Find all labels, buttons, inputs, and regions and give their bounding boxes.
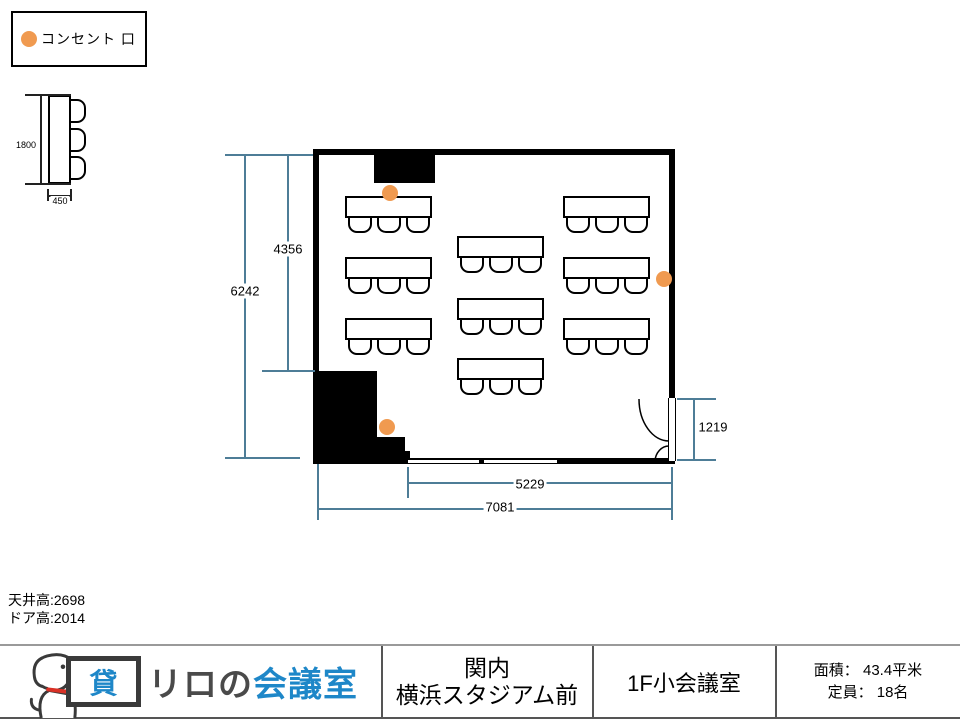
chair bbox=[460, 318, 484, 335]
table bbox=[345, 318, 432, 340]
door-height-note: ドア高:2014 bbox=[8, 609, 85, 627]
chair bbox=[595, 216, 619, 233]
table-with-chairs bbox=[457, 298, 544, 338]
chair bbox=[566, 216, 590, 233]
chair bbox=[624, 277, 648, 294]
chair bbox=[624, 338, 648, 355]
chair-row bbox=[563, 338, 650, 355]
chair bbox=[406, 216, 430, 233]
footer-stats: 面積： 43.4平米 定員： 18名 bbox=[776, 646, 960, 717]
chair-row bbox=[345, 216, 432, 233]
location-line2: 横浜スタジアム前 bbox=[396, 682, 578, 709]
dimension-tick bbox=[25, 94, 71, 96]
dimension-tick bbox=[225, 154, 313, 156]
chair bbox=[377, 216, 401, 233]
height-notes: 天井高:2698 ドア高:2014 bbox=[8, 591, 85, 627]
table bbox=[563, 318, 650, 340]
legend-label: コンセント 口 bbox=[41, 29, 136, 49]
dimension-tick bbox=[25, 183, 71, 185]
chair bbox=[518, 378, 542, 395]
area-row: 面積： 43.4平米 bbox=[814, 660, 922, 682]
door-opening bbox=[668, 398, 676, 461]
dimension-line bbox=[287, 154, 289, 371]
dimension-tick bbox=[677, 398, 716, 400]
footer-location: 関内 横浜スタジアム前 bbox=[382, 646, 592, 717]
brand-logo: リロの会議室 bbox=[148, 646, 358, 717]
table bbox=[563, 196, 650, 218]
chair bbox=[595, 338, 619, 355]
dimension-tick bbox=[671, 467, 673, 520]
table bbox=[563, 257, 650, 279]
table-with-chairs bbox=[345, 196, 432, 236]
chair bbox=[348, 216, 372, 233]
capacity-label: 定員： bbox=[828, 684, 873, 701]
footer-room-name: 1F小会議室 bbox=[593, 646, 775, 717]
dimension-tick bbox=[317, 464, 319, 520]
pillar-top bbox=[374, 151, 435, 183]
ceiling-height-note: 天井高:2698 bbox=[8, 591, 85, 609]
chair-row bbox=[457, 318, 544, 335]
chair-row bbox=[563, 216, 650, 233]
pillar-bottom-left bbox=[315, 371, 377, 462]
chair-row bbox=[345, 277, 432, 294]
brand-text-gray: リロの bbox=[148, 657, 253, 706]
table-with-chairs bbox=[563, 318, 650, 358]
chair bbox=[518, 256, 542, 273]
area-value: 43.4平米 bbox=[863, 662, 922, 679]
dimension-tick bbox=[70, 189, 72, 201]
table bbox=[457, 236, 544, 258]
chair bbox=[460, 256, 484, 273]
chair bbox=[377, 277, 401, 294]
mini-chair bbox=[69, 128, 86, 152]
chair bbox=[566, 277, 590, 294]
room-name-text: 1F小会議室 bbox=[627, 666, 741, 698]
table-with-chairs bbox=[563, 196, 650, 236]
dim-inner-width: 5229 bbox=[514, 477, 547, 492]
area-label: 面積： bbox=[814, 662, 859, 679]
outlet-dot-icon bbox=[382, 185, 398, 201]
chair bbox=[460, 378, 484, 395]
brand-text-blue: 会議室 bbox=[253, 657, 358, 706]
chair bbox=[406, 338, 430, 355]
chair-row bbox=[457, 256, 544, 273]
mini-chair bbox=[69, 156, 86, 180]
chair-row bbox=[563, 277, 650, 294]
dimension-line bbox=[693, 398, 695, 461]
chair bbox=[377, 338, 401, 355]
capacity-row: 定員： 18名 bbox=[828, 682, 909, 704]
dimension-line bbox=[244, 154, 246, 458]
chair bbox=[489, 318, 513, 335]
chair bbox=[518, 318, 542, 335]
dim-door-width: 1219 bbox=[697, 420, 730, 435]
chair bbox=[595, 277, 619, 294]
chair bbox=[566, 338, 590, 355]
outlet-dot-icon bbox=[21, 31, 37, 47]
capacity-value: 18名 bbox=[877, 684, 909, 701]
chair bbox=[489, 378, 513, 395]
chair-row bbox=[345, 338, 432, 355]
dimension-line bbox=[40, 95, 42, 184]
mini-chair bbox=[69, 99, 86, 123]
dimension-tick bbox=[407, 467, 409, 498]
chair-row bbox=[457, 378, 544, 395]
outlet-dot-icon bbox=[656, 271, 672, 287]
chair bbox=[489, 256, 513, 273]
mini-table-length-label: 1800 bbox=[14, 140, 38, 150]
table bbox=[457, 298, 544, 320]
chair bbox=[624, 216, 648, 233]
rental-badge: 貸 bbox=[66, 656, 141, 707]
dim-outer-depth: 6242 bbox=[229, 284, 262, 299]
dim-outer-width: 7081 bbox=[484, 500, 517, 515]
dimension-tick bbox=[677, 459, 716, 461]
mini-table-diagram bbox=[48, 95, 71, 184]
mini-table-depth-label: 450 bbox=[50, 196, 69, 206]
table bbox=[457, 358, 544, 380]
dimension-tick bbox=[262, 370, 315, 372]
legend-box: コンセント 口 bbox=[11, 11, 147, 67]
rental-badge-char: 貸 bbox=[89, 662, 117, 702]
dim-inner-depth: 4356 bbox=[272, 242, 305, 257]
chair bbox=[348, 338, 372, 355]
outlet-dot-icon bbox=[379, 419, 395, 435]
chair bbox=[406, 277, 430, 294]
table-with-chairs bbox=[457, 358, 544, 398]
dimension-tick bbox=[47, 189, 49, 201]
dimension-tick bbox=[225, 457, 300, 459]
location-line1: 関内 bbox=[464, 655, 510, 682]
footer-divider-bottom bbox=[0, 717, 960, 719]
table-with-chairs bbox=[457, 236, 544, 276]
window-mullion bbox=[479, 460, 484, 463]
table-with-chairs bbox=[563, 257, 650, 297]
table bbox=[345, 257, 432, 279]
floorplan-flyer: コンセント 口 1800 450 4356 6242 1219 52 bbox=[0, 0, 960, 720]
table-with-chairs bbox=[345, 318, 432, 358]
table-with-chairs bbox=[345, 257, 432, 297]
chair bbox=[348, 277, 372, 294]
